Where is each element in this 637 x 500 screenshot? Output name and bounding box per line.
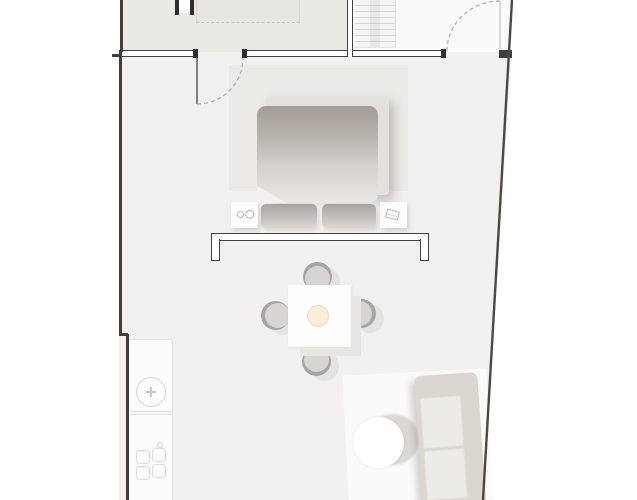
wall-notch	[112, 54, 120, 57]
stove-burner	[136, 466, 150, 480]
wall-segment	[242, 50, 347, 57]
nightstand-left	[231, 202, 258, 228]
mattress	[257, 106, 378, 203]
chair-seat	[265, 303, 290, 328]
nightstand-right	[380, 202, 407, 228]
coffee-table	[353, 417, 404, 468]
wall-segment	[119, 50, 198, 57]
door-jamb	[441, 49, 446, 58]
door-jamb	[190, 0, 194, 15]
glass-partition-leg-left	[211, 239, 220, 261]
book-icon	[385, 209, 400, 221]
dining-chair-bottom	[302, 347, 331, 376]
interior-wall	[347, 0, 353, 57]
pillow-left	[261, 204, 317, 228]
stove-knob	[157, 442, 163, 448]
stove-burner	[136, 450, 150, 464]
sofa	[414, 372, 487, 500]
chair-seat	[304, 347, 329, 372]
dining-chair-left	[261, 301, 290, 330]
glass-partition-bar	[211, 233, 429, 241]
exterior-wall-left-upper	[120, 0, 123, 52]
dining-chair-right	[347, 299, 376, 328]
sofa-cushion	[423, 448, 467, 500]
exterior-wall-left	[119, 51, 122, 335]
top-exterior-door	[179, 0, 191, 13]
wall-stub	[499, 50, 512, 58]
glass-partition-leg-right	[420, 239, 429, 261]
staircase	[355, 0, 396, 48]
door-jamb	[242, 49, 247, 58]
door-jamb	[193, 49, 198, 58]
kitchen-sink	[136, 377, 166, 407]
glasses-icon	[236, 210, 244, 218]
centerpiece-bowl	[307, 305, 329, 327]
pillow-right	[322, 204, 376, 228]
sofa-cushion	[420, 395, 464, 449]
wardrobe-cabinet	[196, 0, 300, 23]
stove-burner	[152, 448, 166, 462]
wall-segment	[353, 50, 446, 57]
stove-burner	[152, 464, 166, 478]
counter-divider	[130, 411, 172, 415]
floorplan-canvas	[0, 0, 637, 500]
